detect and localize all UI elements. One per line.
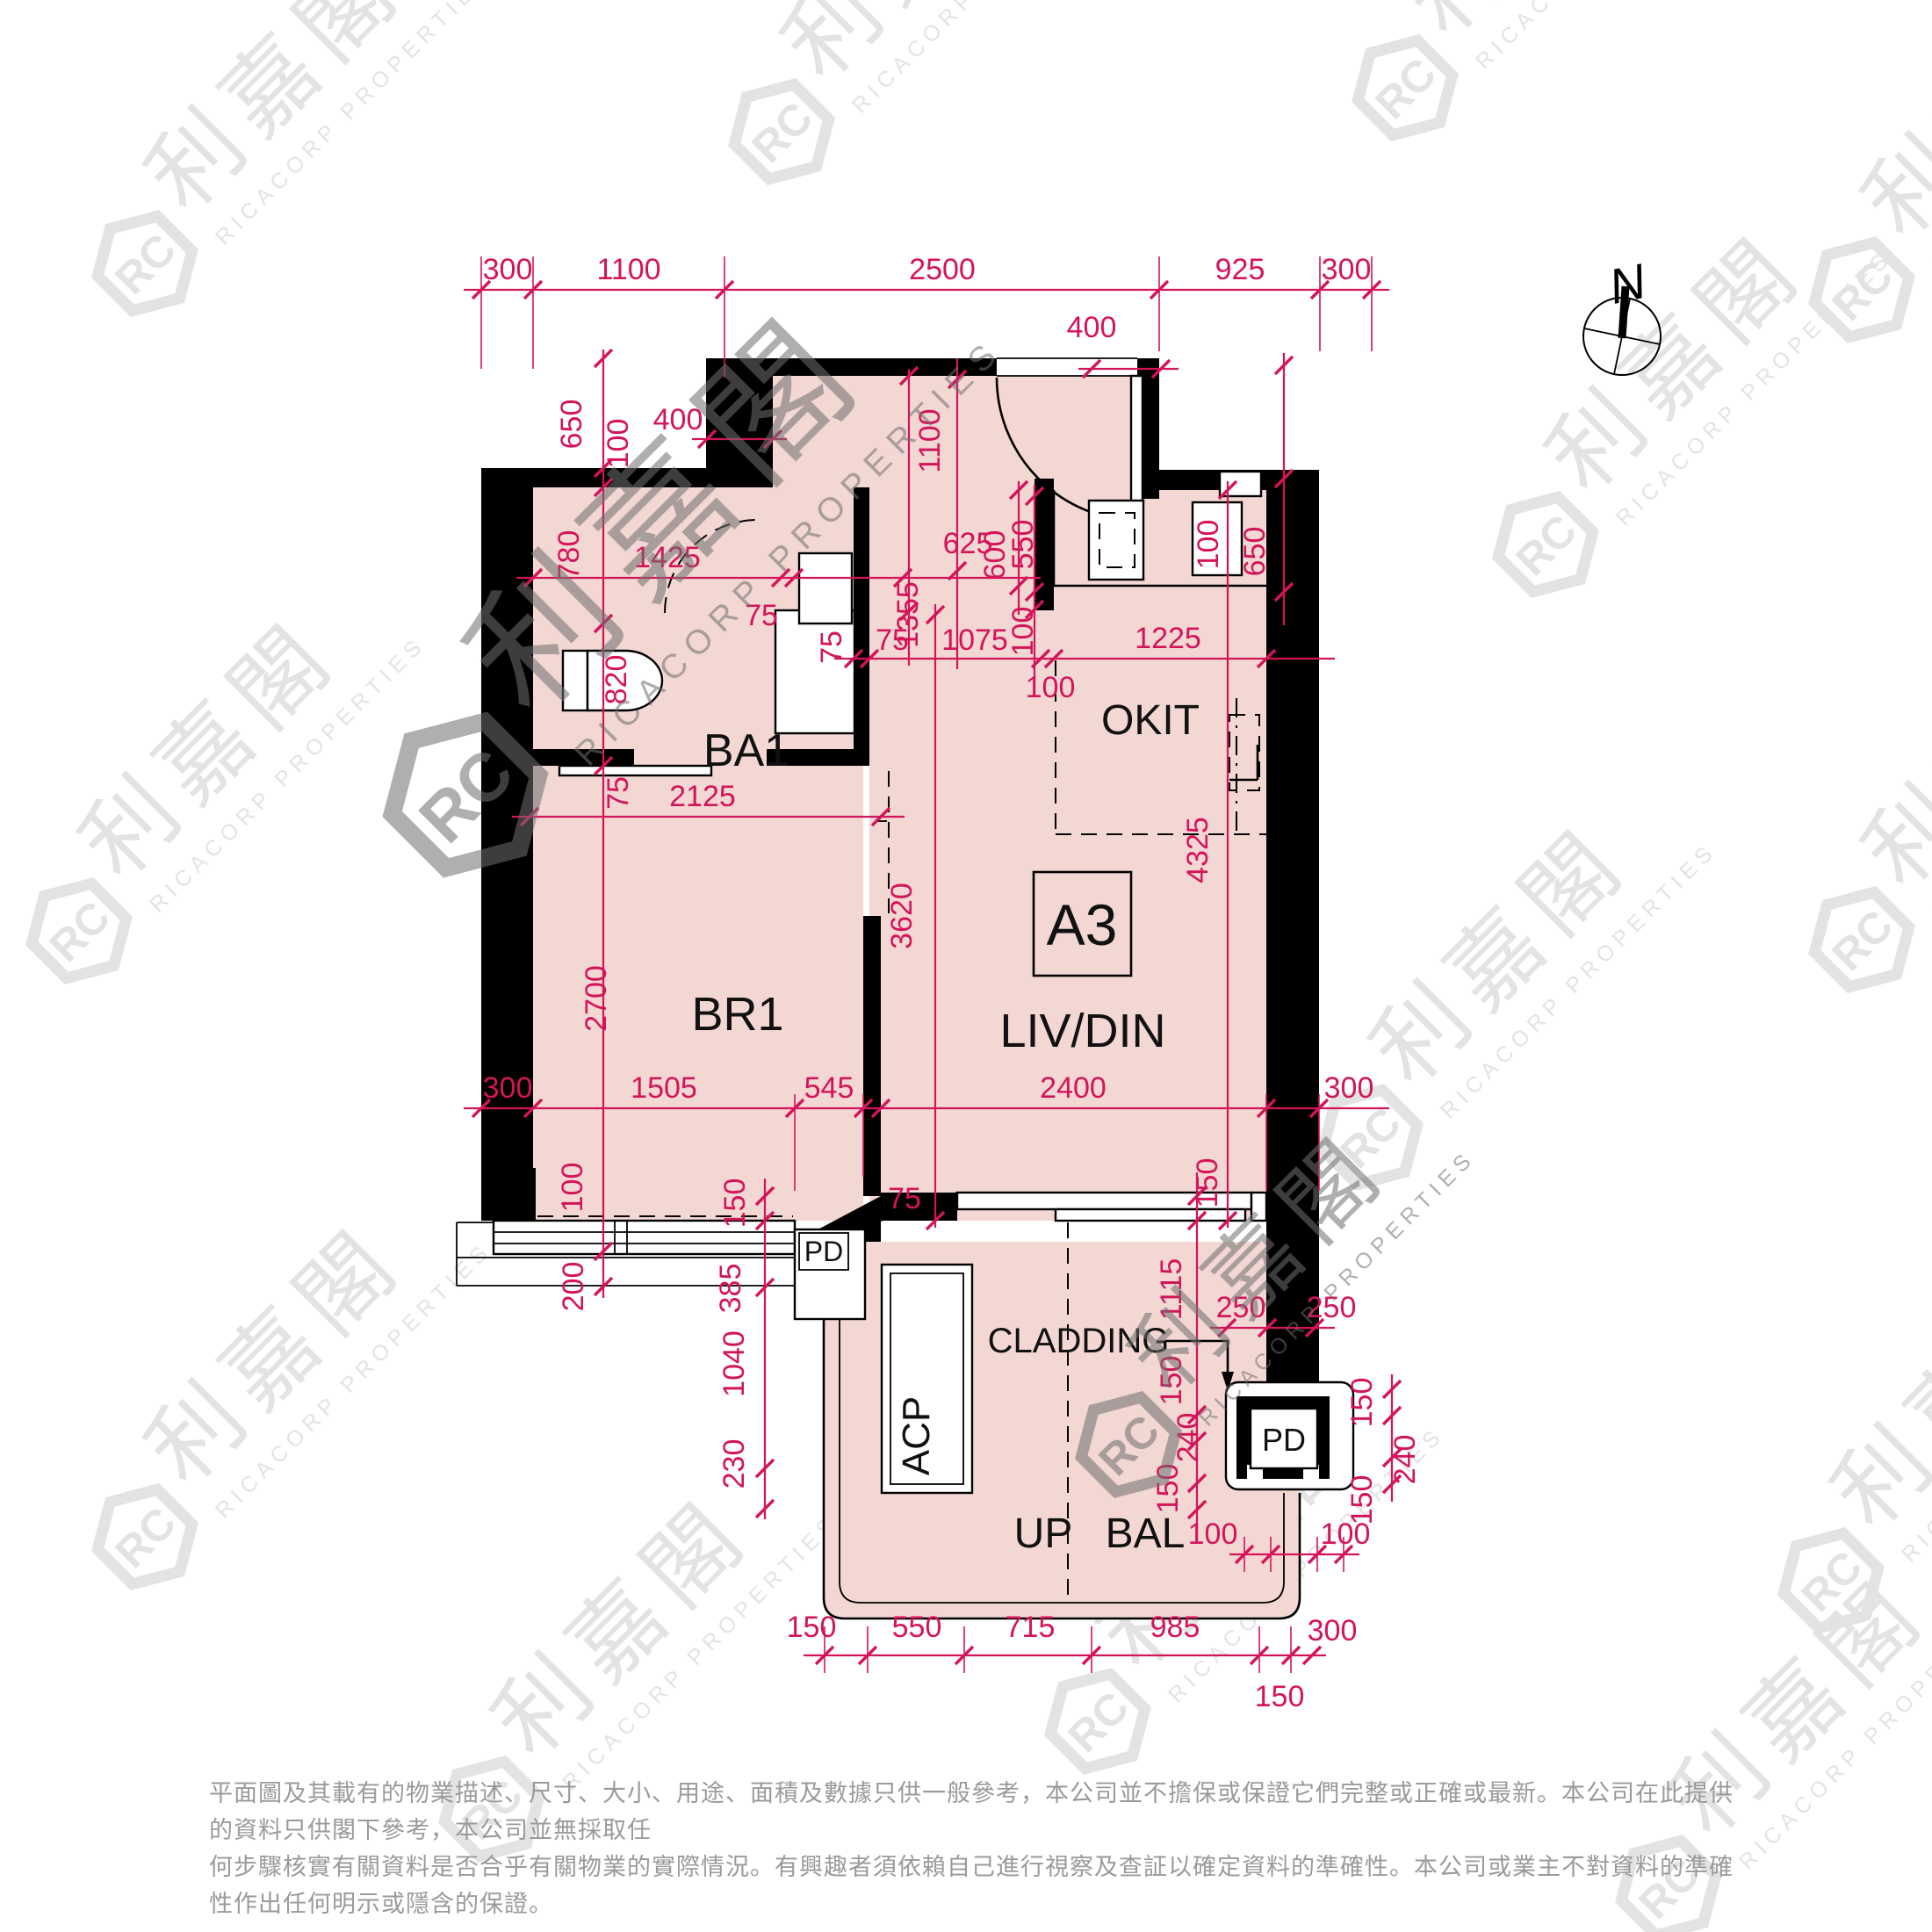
dim: 300 [483,253,533,286]
room-label-br1: BR1 [691,988,783,1041]
dim: 300 [483,1071,533,1105]
dim: 100 [1006,607,1040,657]
dim: 300 [1322,253,1372,286]
dim: 2500 [909,253,976,286]
dim: 4325 [1181,817,1215,883]
dim: 300 [1324,1071,1374,1105]
room-label-bal: BAL [1106,1510,1186,1557]
dim: 150 [787,1611,837,1644]
dim: 1505 [631,1071,697,1105]
dim: 150 [718,1179,752,1229]
dim: 75 [815,631,848,664]
dim: 100 [1321,1517,1371,1551]
room-label-livdin: LIV/DIN [999,1005,1165,1057]
dim: 100 [1192,520,1225,570]
dim: 925 [1215,253,1265,286]
dim: 75 [602,776,635,810]
dim: 1355 [891,581,925,648]
dim: 715 [1006,1611,1056,1644]
room-label-okit: OKIT [1101,697,1200,744]
dim: 650 [1238,527,1272,577]
basin [775,610,854,733]
room-label-pd-left: PD [804,1236,843,1267]
disclaimer-zh-line1: 平面圖及其載有的物業描述、尺寸、大小、用途、面積及數據只供一般參考，本公司並不擔… [209,1776,1755,1849]
dim: 2400 [1040,1071,1107,1105]
dim: 400 [1067,311,1117,344]
dim: 1225 [1135,622,1201,655]
entry-door-leaf [1131,376,1143,521]
balcony-slide-door-track2 [1056,1209,1245,1221]
dim: 2125 [669,780,736,813]
disclaimer-zh-line2: 何步驟核實有關資料是否合乎有關物業的實際情況。有興趣者須依賴自己進行視察及查証以… [209,1849,1755,1923]
dim: 150 [1191,1158,1224,1208]
dim: 150 [1345,1378,1379,1428]
dim: 550 [892,1611,942,1644]
room-label-pd-right: PD [1262,1422,1306,1458]
dim: 545 [804,1071,854,1105]
room-label-ba1: BA1 [703,725,789,776]
dim: 230 [717,1439,751,1489]
dim: 2700 [580,965,613,1032]
dim: 985 [1150,1611,1200,1644]
dim: 3620 [885,883,919,949]
closet [799,553,852,624]
room-label-up: UP [1014,1510,1073,1557]
dim: 650 [555,400,588,450]
floorplan-page: RC 利嘉閣 RICACORP PROPERTIES [0,0,1932,1932]
dim: 240 [1388,1435,1422,1485]
disclaimer: 平面圖及其載有的物業描述、尺寸、大小、用途、面積及數據只供一般參考，本公司並不擔… [209,1776,1755,1932]
dim: 600 [978,530,1012,580]
shelf [559,766,711,775]
dim: 100 [556,1163,589,1213]
compass-north: N [1604,253,1651,314]
unit-label: A3 [1047,892,1118,957]
dim: 100 [1026,671,1076,704]
dim: 300 [1308,1614,1358,1647]
dim: 385 [714,1264,747,1314]
room-label-acp: ACP [895,1396,938,1475]
dim: 1100 [596,253,660,286]
dim: 150 [1255,1680,1305,1713]
dim: 100 [1188,1517,1238,1551]
dim: 1075 [941,624,1008,657]
floorplan-canvas: RC 利嘉閣 RICACORP PROPERTIES [0,0,1932,1932]
dim: 1040 [717,1330,751,1397]
dim: 200 [557,1262,590,1312]
dim: 75 [888,1182,921,1215]
